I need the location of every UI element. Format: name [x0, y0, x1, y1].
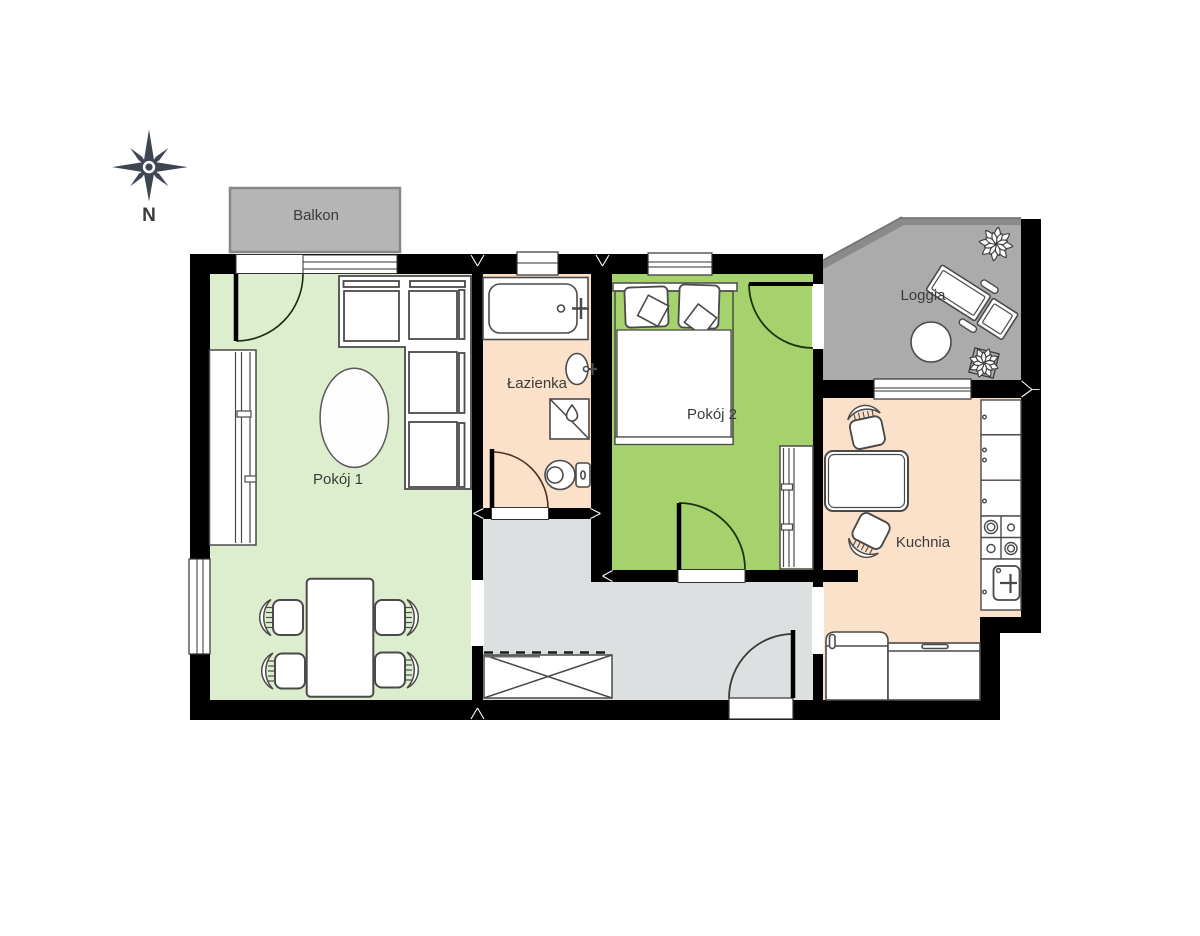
svg-text:Pokój 1: Pokój 1: [313, 471, 363, 488]
svg-text:Loggia: Loggia: [900, 287, 946, 304]
svg-text:Łazienka: Łazienka: [507, 375, 568, 392]
svg-text:Kuchnia: Kuchnia: [896, 534, 951, 551]
svg-text:Balkon: Balkon: [293, 207, 339, 224]
svg-text:N: N: [142, 205, 156, 226]
svg-text:Pokój 2: Pokój 2: [687, 406, 737, 423]
